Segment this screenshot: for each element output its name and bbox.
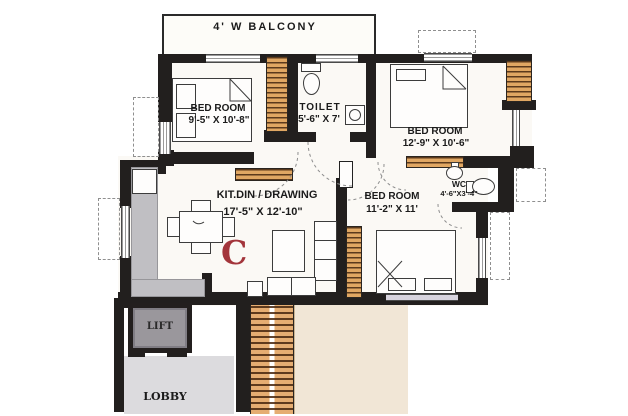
bedroom3-dims: 11'-2" X 11' [366,205,418,215]
kitchen-drawing-label: KIT.DIN / DRAWING [217,190,318,201]
toilet-label: TOILET [299,103,340,113]
fold-bed3 [378,261,402,287]
bedroom2-label: BED ROOM [408,127,463,137]
fold-bed1 [230,79,251,101]
unit-letter: C [221,236,247,269]
bedroom2-dims: 12'-9" X 10'-6" [403,139,470,149]
lobby-label: LOBBY [143,391,187,402]
fold-bed2 [443,66,466,89]
kitchen-drawing-dims: 17'-5" X 12'-10" [223,207,302,218]
bedroom1-label: BED ROOM [191,104,246,114]
door-arc-wc [438,204,462,228]
toilet-dims: 5'-6" X 7' [298,115,340,125]
annotation-overlay [0,0,628,416]
bedroom3-label: BED ROOM [365,192,420,202]
table-mark [193,221,204,224]
wc-label: WC [452,180,466,189]
bedroom1-dims: 9'-5" X 10'-8" [189,116,250,126]
floor-plan: 4' W BALCONY BED ROOM 9'-5" X 10'-8" TOI… [0,0,628,416]
door-arc-toilet [308,142,352,186]
balcony-label: 4' W BALCONY [213,22,317,33]
wc-dims: 4'-6"X3'-4" [440,190,477,198]
lift-label: LIFT [147,322,173,332]
